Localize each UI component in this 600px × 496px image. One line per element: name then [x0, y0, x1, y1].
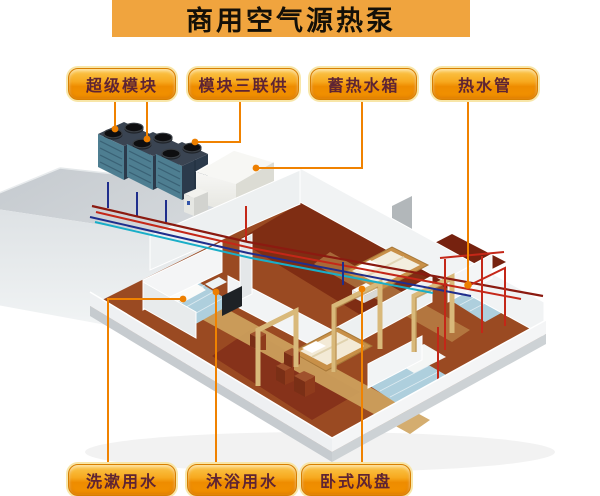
connector-module-triple [197, 97, 240, 142]
callout-super-module: 超级模块 [68, 68, 176, 100]
page-title: 商用空气源热泵 [112, 0, 470, 37]
callout-horizontal-fan-coil: 卧式风盘 [301, 464, 411, 496]
callout-heat-storage-tank-label: 蓄热水箱 [327, 72, 399, 96]
callout-heat-storage-tank: 蓄热水箱 [310, 68, 417, 100]
callout-bathing-water-label: 沐浴用水 [206, 468, 278, 492]
callout-module-triple-supply-label: 模块三联供 [198, 72, 288, 96]
callout-module-triple-supply: 模块三联供 [188, 68, 299, 100]
callout-super-module-label: 超级模块 [86, 72, 158, 96]
connector-storage-tank [258, 97, 362, 168]
diagram-stage: 商用空气源热泵 超级模块 模块三联供 蓄热水箱 热水管 洗漱用水 沐浴用水 卧式… [0, 0, 600, 495]
callout-horizontal-fan-coil-label: 卧式风盘 [320, 468, 392, 492]
page-title-text: 商用空气源热泵 [186, 0, 396, 38]
callout-hot-water-pipe: 热水管 [432, 68, 538, 100]
callout-washing-water: 洗漱用水 [68, 464, 176, 496]
callout-bathing-water: 沐浴用水 [187, 464, 297, 496]
callout-hot-water-pipe-label: 热水管 [458, 72, 512, 96]
callout-washing-water-label: 洗漱用水 [86, 468, 158, 492]
